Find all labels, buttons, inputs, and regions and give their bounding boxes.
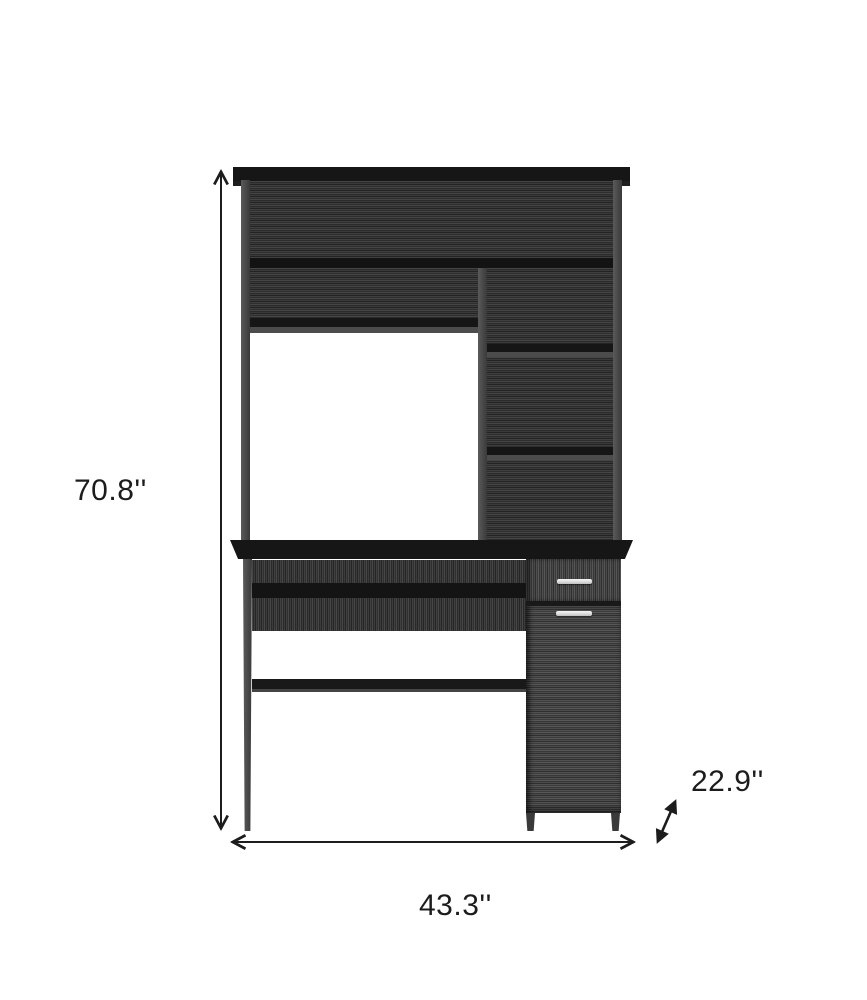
cabinet-foot-left (526, 813, 535, 831)
desk-apron-upper (252, 560, 526, 583)
hutch-right-side-panel (613, 180, 622, 541)
desk-left-leg (243, 559, 252, 831)
cubby-bottom-back-panel (487, 460, 613, 541)
cubby-shelf-1-board (487, 344, 613, 352)
keyboard-tray-slot (252, 583, 526, 598)
cubby-shelf-2-board (487, 447, 613, 455)
depth-dimension-arrow (658, 802, 675, 841)
hutch-left-shelf-board (250, 318, 478, 327)
door-drawer-handle (556, 611, 592, 616)
desk-crossbar (252, 679, 526, 692)
cubby-top-back-panel (487, 268, 613, 344)
hutch-left-shelf-back-panel (250, 268, 478, 318)
hutch-upper-back-panel (250, 181, 613, 258)
width-dimension-label: 43.3'' (419, 889, 492, 923)
cabinet-foot-right (611, 813, 620, 831)
hutch-top-board (233, 167, 630, 181)
depth-dimension-label: 22.9'' (691, 765, 764, 799)
cubby-middle-back-panel (487, 357, 613, 447)
hutch-left-side-panel (241, 180, 250, 541)
desk-top-board (230, 540, 633, 559)
top-drawer-handle (557, 579, 592, 584)
height-dimension-label: 70.8'' (74, 474, 147, 508)
hutch-left-shelf-edge (250, 327, 478, 333)
desk-apron-lower (252, 598, 526, 631)
hutch-middle-shelf-board (250, 258, 613, 268)
hutch-center-divider-panel (478, 268, 487, 541)
drawer-cabinet-door (526, 606, 621, 813)
product-dimension-diagram: 70.8'' 43.3'' 22.9'' (0, 0, 867, 1000)
